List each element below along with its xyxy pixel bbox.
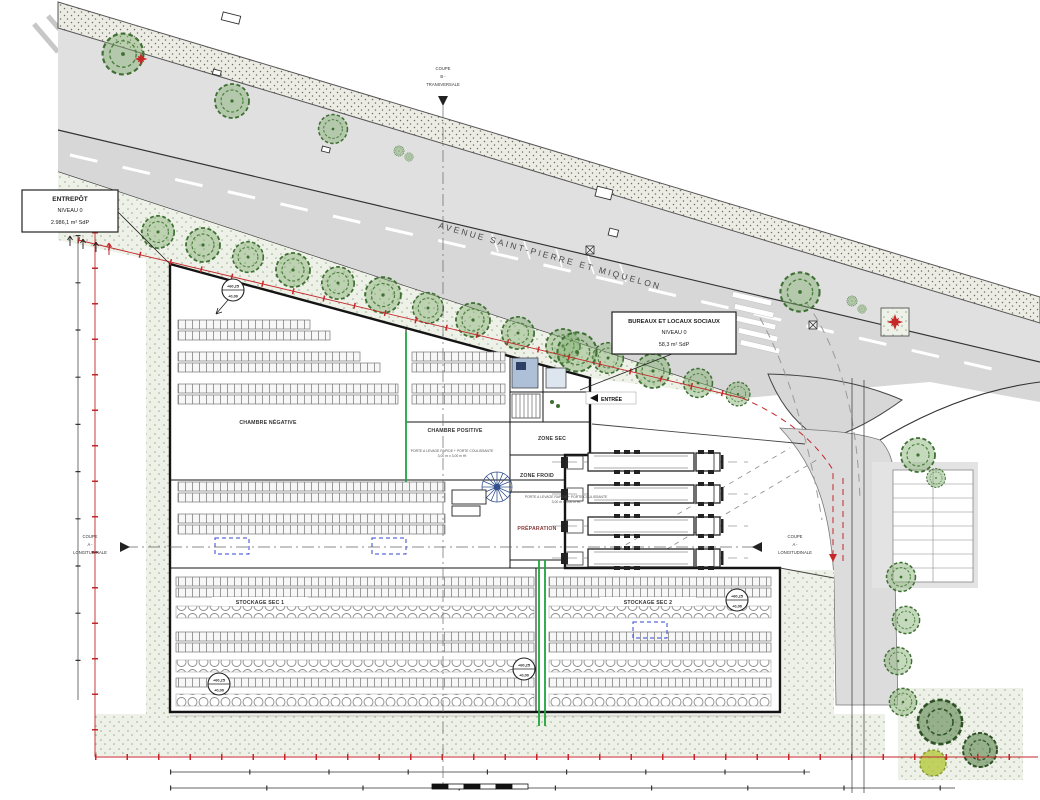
bureaux-area: 58,3 m² SdP	[659, 342, 690, 348]
svg-text:COUPE: COUPE	[436, 66, 451, 71]
level-marker: +60,25 +0,00	[726, 589, 748, 611]
bus-shelter-icon	[221, 12, 240, 24]
neighbour-hatch	[34, 24, 58, 52]
tree-icon	[884, 647, 911, 674]
planted-strip-west	[146, 252, 172, 714]
section-label-a-right: COUPE A - LONGITUDINALE	[778, 534, 812, 555]
bench-icon	[608, 228, 618, 237]
tree-icon	[684, 369, 713, 398]
room-label-zone-sec: ZONE SEC	[538, 436, 566, 442]
plant-icon	[556, 404, 560, 408]
work-table	[452, 506, 480, 516]
section-label-b: COUPE B - TRANSVERSALE	[426, 66, 460, 87]
tree-icon	[319, 115, 348, 144]
room-label-chambre-positive: CHAMBRE POSITIVE	[427, 428, 482, 434]
svg-text:+60,25: +60,25	[213, 678, 226, 683]
dock-leveler	[567, 552, 583, 565]
tree-icon	[892, 606, 919, 633]
office-fixture	[516, 362, 526, 370]
spiral-stair	[482, 472, 512, 502]
bureaux-level: NIVEAU 0	[661, 330, 686, 336]
svg-text:TRANSVERSALE: TRANSVERSALE	[426, 82, 460, 87]
bureaux-title: BUREAUX ET LOCAUX SOCIAUX	[628, 319, 720, 325]
svg-text:+0,00: +0,00	[519, 673, 529, 678]
tree-icon	[142, 216, 174, 248]
tree-icon	[322, 267, 354, 299]
truck-icon	[552, 514, 748, 538]
scale-bar	[432, 784, 528, 789]
entrepot-level: NIVEAU 0	[57, 208, 82, 214]
svg-text:COUPE: COUPE	[83, 534, 98, 539]
entrance-marker: ENTRÉE	[586, 392, 636, 404]
door-size-annotation: 3,00 m x 3,00 m Ht	[438, 454, 467, 458]
door-annotation: PORTE A LEVAGE RAPIDE + PORTE COULISSANT…	[411, 449, 494, 453]
apron-edge	[592, 424, 805, 444]
site-plan-page: ENTREPÔT NIVEAU 0 2.986,1 m² SdP BUREAUX…	[0, 0, 1040, 800]
tree-icon	[889, 688, 916, 715]
tree-icon	[901, 438, 935, 472]
svg-text:COUPE: COUPE	[788, 534, 803, 539]
tree-icon	[780, 272, 819, 311]
dock-bay-2	[552, 482, 748, 506]
entrepot-area: 2.986,1 m² SdP	[51, 220, 90, 226]
tree-icon	[920, 750, 946, 776]
planted-strip-east	[782, 570, 834, 756]
planted-strip-south	[95, 714, 885, 756]
room-label-stockage-sec-2: STOCKAGE SEC 2	[624, 600, 673, 606]
entrepot-title: ENTREPÔT	[52, 194, 87, 203]
tree-icon	[726, 382, 750, 406]
room-label-zone-froid: ZONE FROID	[520, 473, 554, 479]
room-label-chambre-negative: CHAMBRE NÉGATIVE	[239, 418, 297, 426]
dock-bay-4	[552, 546, 748, 570]
svg-text:B -: B -	[440, 74, 446, 79]
tree-icon	[186, 228, 220, 262]
shrub-icon	[847, 296, 857, 306]
tree-icon	[887, 563, 916, 592]
tree-icon	[918, 700, 962, 744]
entrance-label: ENTRÉE	[601, 395, 623, 403]
door-annotation: PORTE A LEVAGE RAPIDE + PORTE COULISSANT…	[525, 495, 608, 499]
tree-icon	[276, 253, 310, 287]
level-marker: +60,25 +0,00	[513, 658, 535, 680]
door-size-annotation: 3,00 m x 3,00 m Ht	[552, 500, 581, 504]
section-marker-a-left	[120, 542, 130, 552]
truck-icon	[552, 546, 748, 570]
room-label-stockage-sec-1: STOCKAGE SEC 1	[236, 600, 285, 606]
tree-icon	[215, 84, 249, 118]
tree-icon	[927, 469, 946, 488]
tree-icon	[557, 332, 596, 371]
room-label-preparation: PRÉPARATION	[517, 524, 556, 532]
tree-icon	[456, 303, 490, 337]
dock-leveler	[567, 456, 583, 469]
svg-text:A -: A -	[792, 542, 798, 547]
svg-text:+0,00: +0,00	[228, 294, 238, 299]
tree-icon	[636, 354, 670, 388]
svg-text:+60,25: +60,25	[731, 594, 744, 599]
office-room	[546, 368, 566, 388]
dock-bay-3	[552, 514, 748, 538]
svg-text:A -: A -	[87, 542, 93, 547]
svg-text:LONGITUDINALE: LONGITUDINALE	[778, 550, 812, 555]
svg-text:+0,00: +0,00	[214, 688, 224, 693]
shrub-icon	[394, 146, 404, 156]
svg-text:+60,25: +60,25	[518, 663, 531, 668]
shrub-icon	[405, 153, 414, 162]
section-marker-a-right	[752, 542, 762, 552]
section-marker-b	[438, 96, 448, 106]
svg-text:LONGITUDINALE: LONGITUDINALE	[73, 550, 107, 555]
plant-icon	[550, 400, 554, 404]
planter-east	[881, 308, 909, 336]
tree-icon	[413, 293, 444, 324]
tree-icon	[963, 733, 997, 767]
svg-text:+60,25: +60,25	[227, 284, 240, 289]
tree-icon	[103, 34, 144, 75]
shrub-icon	[858, 305, 867, 314]
site-plan-drawing: ENTREPÔT NIVEAU 0 2.986,1 m² SdP BUREAUX…	[0, 0, 1040, 800]
tree-icon	[365, 277, 401, 313]
svg-text:+0,00: +0,00	[732, 604, 742, 609]
tree-icon	[233, 242, 264, 273]
truck-icon	[552, 482, 748, 506]
level-marker: +60,25 +0,00	[208, 673, 230, 695]
dock-leveler	[567, 520, 583, 533]
work-table	[452, 490, 486, 504]
